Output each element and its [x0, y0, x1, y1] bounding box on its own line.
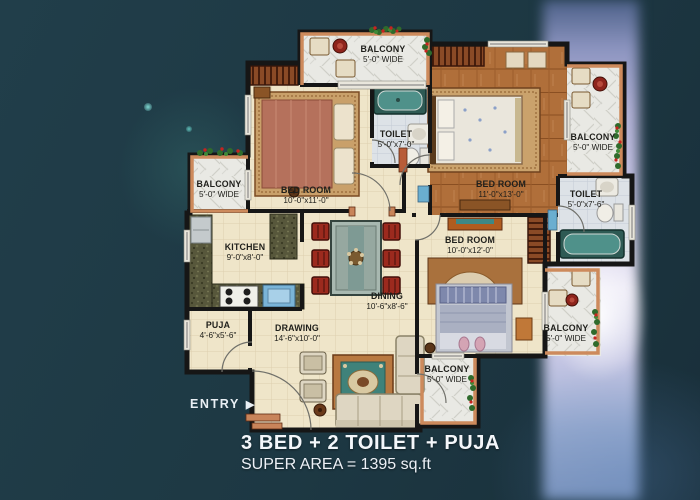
label-bedroom-top-left: BED ROOM 10'-0"x11'-0" — [281, 185, 331, 207]
label-toilet-top: TOILET 5'-0"x7'-0" — [378, 129, 415, 151]
label-bedroom-top-right: BED ROOM 11'-0"x13'-0" — [476, 179, 526, 201]
label-balcony-right-top: BALCONY 5'-0" WIDE — [571, 132, 616, 154]
plan-super-area: SUPER AREA = 1395 sq.ft — [241, 456, 431, 474]
entry-arrow-icon: ▶ — [246, 398, 254, 411]
entry-marker: ENTRY ▶ — [190, 397, 254, 411]
label-balcony-bottom: BALCONY 5'-0" WIDE — [425, 364, 470, 386]
floorplan-scene: BALCONY 5'-0" WIDE BALCONY 5'-0" WIDE BA… — [0, 0, 700, 500]
floor-plan-svg — [0, 0, 700, 500]
bedroom1-furniture — [254, 87, 359, 197]
label-balcony-top: BALCONY 5'-0" WIDE — [361, 44, 406, 66]
label-dining: DINING 10'-6"x8'-6" — [366, 291, 407, 313]
entry-label: ENTRY — [190, 397, 240, 411]
label-puja: PUJA 4'-6"x5'-6" — [200, 320, 237, 342]
dining-set — [312, 221, 400, 295]
label-balcony-right-bottom: BALCONY 5'-0" WIDE — [544, 323, 589, 345]
label-toilet-right: TOILET 5'-0"x7'-6" — [568, 189, 605, 211]
label-drawing: DRAWING 14'-6"x10'-0" — [274, 323, 320, 345]
plan-title: 3 BED + 2 TOILET + PUJA — [241, 432, 500, 455]
label-kitchen: KITCHEN 9'-0"x8'-0" — [225, 242, 266, 264]
label-balcony-left: BALCONY 5'-0" WIDE — [197, 179, 242, 201]
label-bedroom-bottom: BED ROOM 10'-0"x12'-0" — [445, 235, 495, 257]
